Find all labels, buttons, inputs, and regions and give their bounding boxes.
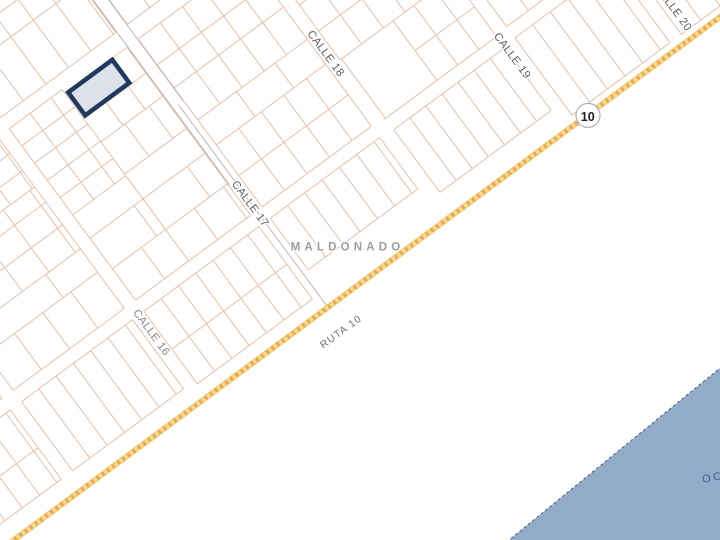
svg-text:10: 10 — [581, 110, 595, 124]
svg-text:MALDONADO: MALDONADO — [291, 242, 405, 254]
